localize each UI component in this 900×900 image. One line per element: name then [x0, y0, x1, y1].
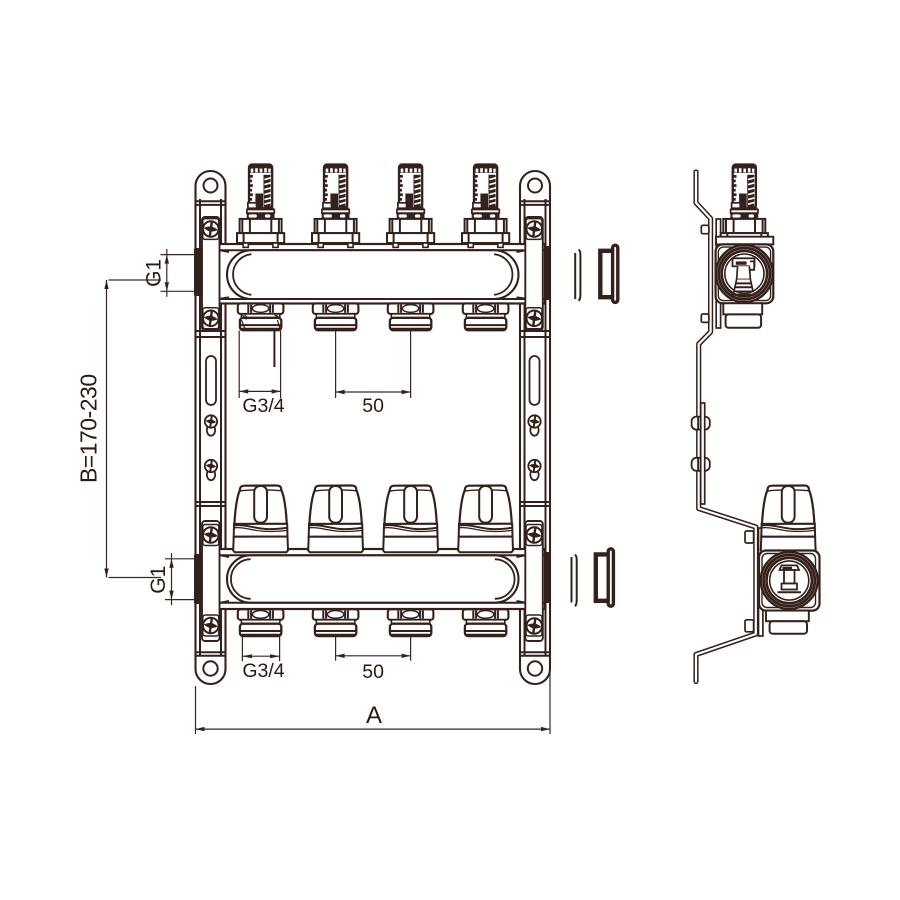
- svg-text:50: 50: [362, 661, 384, 683]
- svg-text:B=170-230: B=170-230: [76, 374, 102, 483]
- svg-text:A: A: [366, 702, 382, 729]
- svg-text:50: 50: [362, 395, 384, 417]
- svg-text:G1: G1: [143, 259, 166, 287]
- svg-text:G1: G1: [147, 566, 170, 594]
- svg-text:G3/4: G3/4: [242, 660, 284, 682]
- svg-text:G3/4: G3/4: [242, 395, 284, 417]
